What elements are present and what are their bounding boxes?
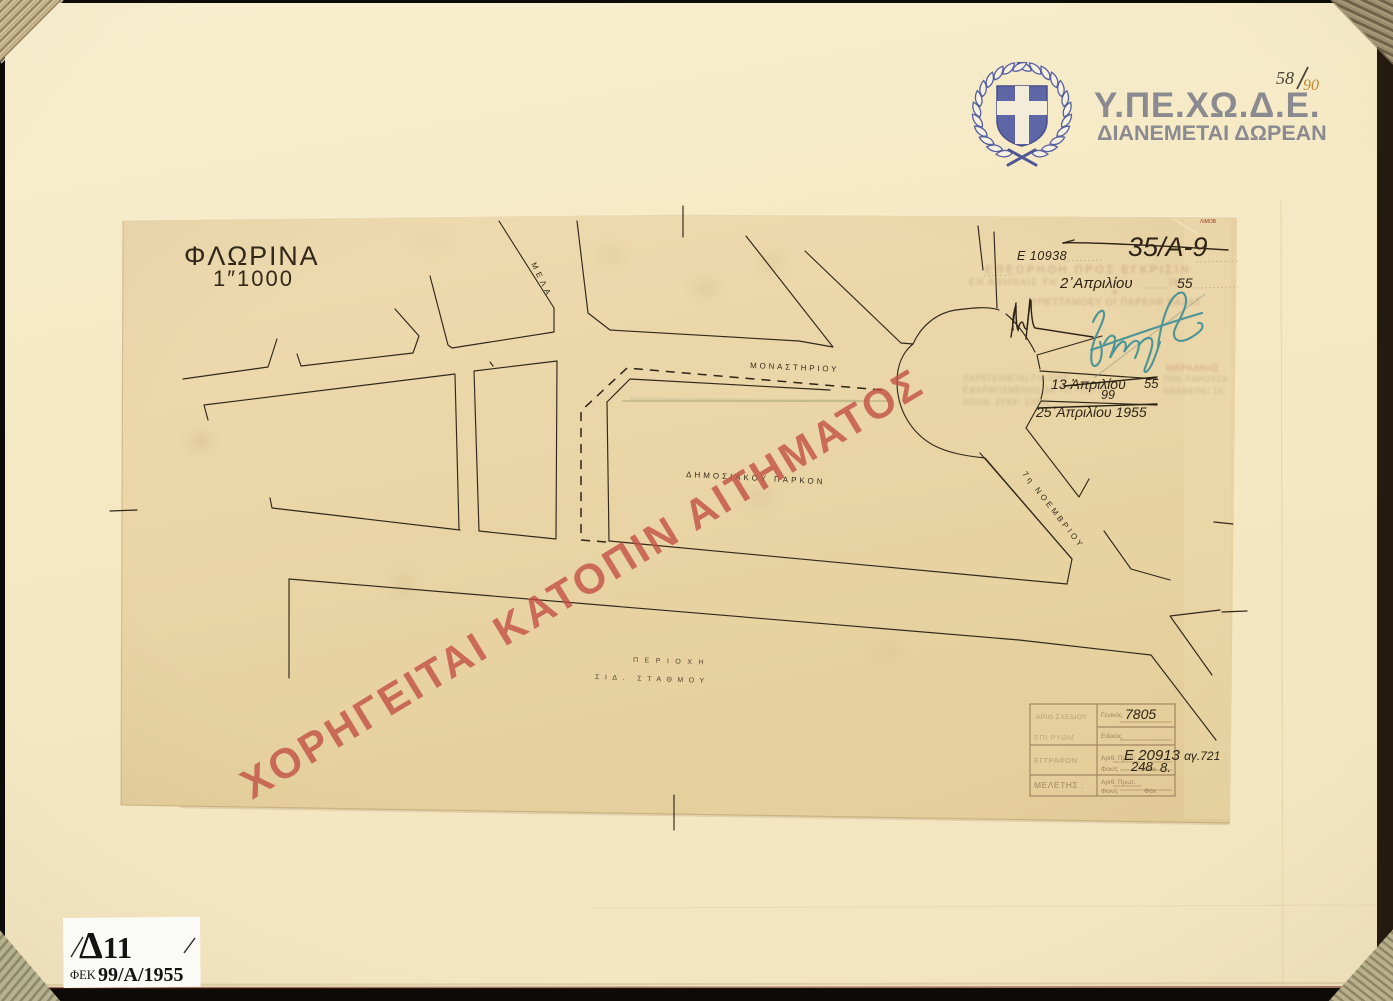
- svg-text:Υ.ΠΕ.ΧΩ.Δ.Ε.: Υ.ΠΕ.ΧΩ.Δ.Ε.: [1094, 86, 1320, 125]
- svg-text:Φάκ: Φάκ: [1144, 787, 1157, 795]
- svg-text:ΜΕΛΕΤΗΣ :: ΜΕΛΕΤΗΣ :: [1034, 780, 1084, 790]
- svg-text:99/Α/1955: 99/Α/1955: [98, 964, 184, 986]
- svg-text:Ειδικός: Ειδικός: [1101, 732, 1122, 740]
- svg-text:Φακ/ς: Φακ/ς: [1101, 766, 1118, 773]
- svg-text:ΕΝ ΑΘΗΝΑΙΣ ΤΗ: ΕΝ ΑΘΗΝΑΙΣ ΤΗ: [969, 277, 1057, 287]
- svg-text:8.: 8.: [1160, 760, 1171, 775]
- svg-text:1″1000: 1″1000: [213, 266, 294, 291]
- svg-text:Αριθ. Πρωτ.: Αριθ. Πρωτ.: [1101, 779, 1136, 786]
- svg-text:99: 99: [1101, 388, 1115, 402]
- svg-text:ΕΓΓΡΑΦΩΝ :: ΕΓΓΡΑΦΩΝ :: [1034, 756, 1083, 765]
- svg-text:7805: 7805: [1125, 706, 1156, 722]
- svg-text:ΜΑΡΚΑΚΗΣ: ΜΑΡΚΑΚΗΣ: [1166, 363, 1220, 373]
- svg-text:ΑΝΑΦΕΡΕΙ ΣΕ: ΑΝΑΦΕΡΕΙ ΣΕ: [1163, 387, 1225, 396]
- svg-text:ΦΕΚ: ΦΕΚ: [70, 968, 96, 982]
- svg-text:58: 58: [1276, 68, 1294, 88]
- svg-text:Δ11: Δ11: [79, 925, 132, 967]
- svg-text:ΤΗΝ ΠΑΡΟΥΣΑ: ΤΗΝ ΠΑΡΟΥΣΑ: [1163, 375, 1229, 384]
- svg-text:Ε 10938: Ε 10938: [1017, 249, 1067, 263]
- svg-text:248: 248: [1130, 759, 1153, 774]
- svg-text:ΔΙΑΝΕΜΕΤΑΙ ΔΩΡΕΑΝ: ΔΙΑΝΕΜΕΤΑΙ ΔΩΡΕΑΝ: [1097, 121, 1327, 145]
- svg-text:ΕΠΙ ΡΥΘΜ: ΕΠΙ ΡΥΘΜ: [1034, 733, 1074, 742]
- svg-text:Φακ/ς: Φακ/ς: [1101, 788, 1118, 795]
- svg-text:Γενικός: Γενικός: [1101, 711, 1122, 719]
- svg-text:2᾽Απριλίου: 2᾽Απριλίου: [1059, 275, 1133, 292]
- svg-text:55: 55: [1177, 275, 1193, 291]
- svg-text:ΥΠΕΤΤΛΜΟΕΥ ΟΙ ΠΑΡΕΛΘ ΒΑΖΑΣ: ΥΠΕΤΤΛΜΟΕΥ ΟΙ ΠΑΡΕΛΘ ΒΑΖΑΣ: [1031, 297, 1202, 307]
- svg-text:ΑΡΙΘ ΣΧΕΔΙΟΥ: ΑΡΙΘ ΣΧΕΔΙΟΥ: [1036, 714, 1087, 721]
- svg-text:ΛΙΜΟΒ: ΛΙΜΟΒ: [1200, 219, 1217, 225]
